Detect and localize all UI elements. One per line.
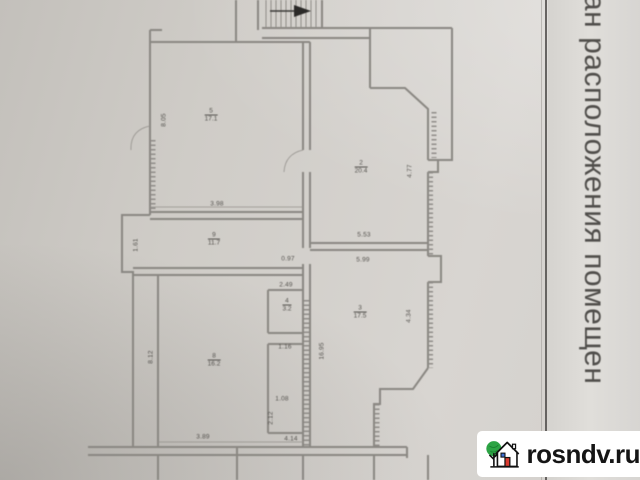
room-label: 43.2 xyxy=(282,298,291,313)
watermark: rosndv.ru xyxy=(477,431,640,477)
dimension-label: 4.14 xyxy=(284,436,297,443)
dimension-label: 2.12 xyxy=(268,411,275,424)
room-label: 816.2 xyxy=(208,353,221,368)
stair-hatch xyxy=(266,0,316,28)
room-area: 17.5 xyxy=(354,313,367,320)
dimension-label: 1.61 xyxy=(133,238,140,251)
dimension-label: 1.16 xyxy=(278,344,291,351)
room-label: 911.7 xyxy=(208,232,220,247)
room-number: 3 xyxy=(354,305,367,313)
dimension-label: 4.34 xyxy=(406,309,413,322)
dimension-label: 8.05 xyxy=(161,113,168,126)
dimension-label: 8.12 xyxy=(148,350,155,363)
walls xyxy=(88,0,452,480)
room-label: 220.4 xyxy=(355,160,368,175)
room-area: 11.7 xyxy=(208,240,220,247)
dimension-label: 1.08 xyxy=(275,396,288,403)
dimension-label: 3.98 xyxy=(210,201,223,208)
dimension-label: 5.99 xyxy=(356,257,369,264)
room-area: 16.2 xyxy=(208,361,221,368)
dimension-label: 4.77 xyxy=(407,164,414,177)
rosndv-logo-icon xyxy=(485,436,521,472)
room-label: 317.5 xyxy=(354,305,367,320)
side-caption: ан расположения помещен xyxy=(577,0,611,384)
dimension-label: 16.95 xyxy=(319,342,326,359)
room-number: 4 xyxy=(282,298,291,306)
room-number: 2 xyxy=(355,160,368,168)
room-area: 17.1 xyxy=(205,116,218,123)
page-fold-shadow xyxy=(541,0,542,480)
room-area: 3.2 xyxy=(282,306,291,313)
page-fold-line xyxy=(545,0,547,480)
floor-plan-svg xyxy=(0,0,640,480)
wall-hatching xyxy=(153,112,434,447)
floorplan-photo: 8.053.981.610.975.535.994.774.3416.952.4… xyxy=(0,0,640,480)
watermark-text: rosndv.ru xyxy=(527,439,640,470)
room-number: 9 xyxy=(208,232,220,240)
room-area: 20.4 xyxy=(355,168,368,175)
dimension-label: 0.97 xyxy=(281,256,294,263)
room-number: 8 xyxy=(208,353,221,361)
dimension-label: 2.49 xyxy=(279,282,292,289)
room-label: 517.1 xyxy=(205,108,218,123)
dimension-label: 3.89 xyxy=(196,434,209,441)
dimension-label: 5.53 xyxy=(357,232,370,239)
room-number: 5 xyxy=(205,108,218,116)
floor-plan: 8.053.981.610.975.535.994.774.3416.952.4… xyxy=(0,0,640,480)
